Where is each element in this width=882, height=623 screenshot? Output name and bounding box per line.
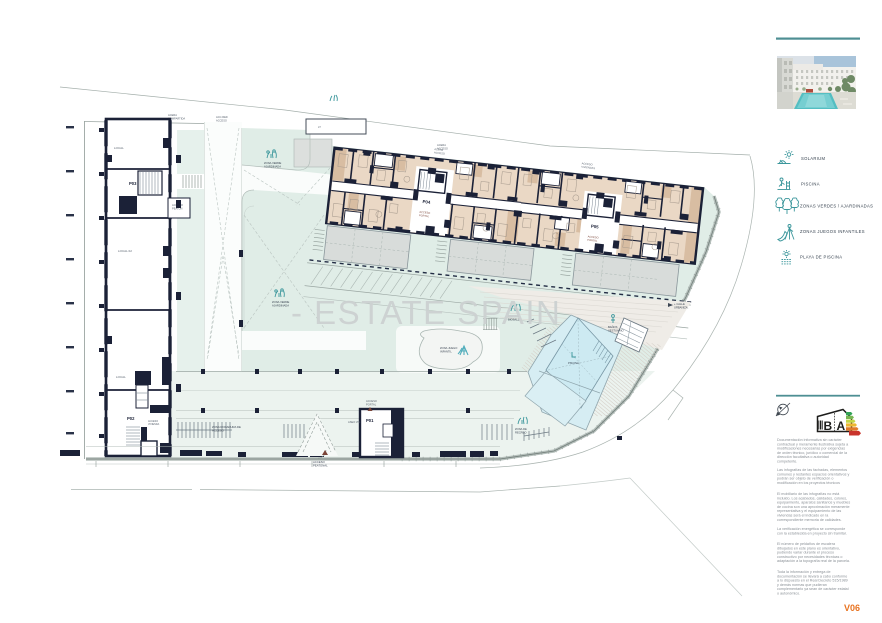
svg-text:ACC.RED: ACC.RED (216, 115, 228, 119)
svg-text:P05: P05 (591, 224, 600, 230)
svg-text:INFANTIL: INFANTIL (440, 349, 452, 353)
svg-text:B: B (824, 419, 833, 433)
svg-text:ACERA: ACERA (437, 143, 446, 147)
svg-text:PORTAL: PORTAL (366, 402, 377, 406)
svg-text:P03: P03 (129, 181, 137, 186)
svg-text:LOCAL: LOCAL (114, 146, 124, 150)
svg-text:- ESTATE SPAIN: - ESTATE SPAIN (291, 294, 561, 331)
svg-text:PISCINA: PISCINA (801, 182, 820, 187)
svg-text:ACCESO: ACCESO (437, 146, 448, 150)
svg-text:PLAYA DE PISCINA: PLAYA DE PISCINA (800, 255, 842, 260)
svg-text:ACCESO: ACCESO (366, 399, 377, 403)
svg-text:El mobiliario de las infografí: El mobiliario de las infografías no está… (777, 492, 850, 522)
svg-text:LT: LT (318, 125, 321, 129)
svg-text:ASEO VIV.: ASEO VIV. (348, 420, 361, 424)
svg-text:P02: P02 (127, 416, 135, 421)
svg-text:LOCAL: LOCAL (116, 375, 126, 379)
svg-text:RECREO: RECREO (515, 430, 527, 434)
svg-text:ZONA VERDE: ZONA VERDE (264, 161, 282, 165)
svg-text:ZONA JUEGO: ZONA JUEGO (440, 346, 457, 350)
svg-text:ZONAS JUEGOS INFANTILES: ZONAS JUEGOS INFANTILES (800, 229, 865, 234)
svg-text:A: A (837, 419, 846, 433)
svg-text:PISCINA: PISCINA (568, 361, 579, 365)
svg-text:P01: P01 (366, 418, 374, 423)
svg-text:ACERA: ACERA (168, 113, 177, 117)
svg-text:VIVIENDA: VIVIENDA (148, 423, 160, 426)
svg-text:ZONA DE: ZONA DE (515, 427, 527, 431)
svg-text:+ CALLE: + CALLE (674, 302, 685, 306)
svg-text:AJARDINADA: AJARDINADA (264, 164, 281, 168)
svg-text:LOCAL 02: LOCAL 02 (118, 249, 132, 253)
svg-text:PEATONAL: PEATONAL (313, 463, 328, 467)
svg-text:AJARDINADA: AJARDINADA (272, 303, 289, 307)
svg-text:ACCESO: ACCESO (216, 118, 227, 122)
svg-text:La verificación energética se: La verificación energética se correspond… (777, 527, 847, 535)
svg-text:VESTUARIO: VESTUARIO (608, 328, 624, 332)
svg-text:V06: V06 (844, 603, 860, 613)
svg-text:ZONAS VERDES / AJARDINADAS: ZONAS VERDES / AJARDINADAS (800, 204, 873, 209)
svg-text:URBANIZA.: URBANIZA. (674, 305, 689, 309)
svg-text:ZONA VERDE: ZONA VERDE (272, 300, 290, 304)
svg-text:ACCESO: ACCESO (212, 429, 225, 433)
svg-text:SOLARIUM: SOLARIUM (801, 156, 825, 161)
svg-text:P04: P04 (422, 199, 431, 205)
